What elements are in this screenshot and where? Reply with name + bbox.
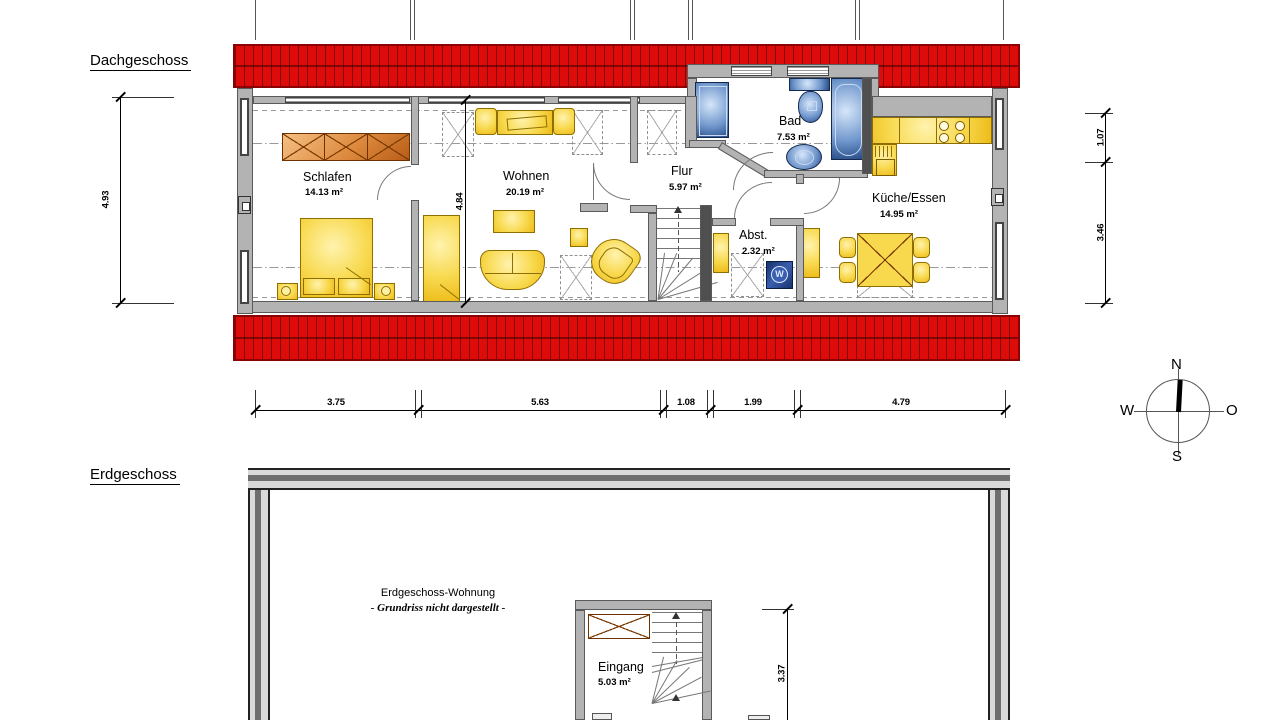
roof-window-marker (442, 112, 474, 157)
room-label-eingang: Eingang (598, 660, 644, 674)
gable-window-post (991, 188, 1004, 206)
partition-wall (411, 200, 419, 301)
stove-burner (955, 121, 965, 131)
bad-wall-bottom (764, 170, 868, 178)
room-label-bad: Bad (779, 114, 801, 128)
gable-window (995, 98, 1004, 150)
dim-chain-line (255, 410, 1005, 411)
room-label-abst: Abst. (739, 228, 768, 242)
washing-machine: W (766, 261, 793, 289)
knee-wall-bottom (237, 301, 1008, 313)
eg-stairs-up-arrow (672, 694, 680, 701)
roof-window-marker (731, 253, 764, 297)
coffee-table (493, 210, 535, 233)
compass-east-label: O (1226, 402, 1238, 419)
sink-basin (876, 159, 895, 176)
armchair (583, 230, 644, 291)
dim-extension-line (692, 0, 693, 40)
stairs-walk-line (678, 214, 679, 272)
dim-extension-line (688, 0, 689, 40)
dim-value-bottom: 3.75 (319, 397, 353, 408)
room-label-flur: Flur (671, 164, 693, 178)
sofa (480, 250, 545, 290)
roof-band-top (233, 44, 1020, 88)
room-area-eingang: 5.03 m² (598, 677, 631, 688)
eg-stairs-walk-line (676, 614, 677, 664)
compass-south-label: S (1172, 448, 1182, 465)
dim-value-left: 4.93 (100, 191, 111, 209)
eg-wardrobe (588, 614, 650, 639)
stove-burner (955, 133, 965, 143)
toilet-cistern (789, 78, 830, 91)
counter-divider (936, 118, 937, 143)
roof-window-marker (560, 255, 592, 300)
dim-value-right-top: 1.07 (1095, 129, 1106, 147)
dim-extension-line (855, 0, 856, 40)
dim-extension-line (762, 609, 794, 610)
tv-board-side (553, 108, 575, 135)
door-arc-kueche (804, 178, 840, 214)
bed-pillow (303, 278, 335, 295)
abst-wall-right (796, 218, 804, 301)
stair-wall-right (700, 205, 712, 301)
compass-north-label: N (1171, 356, 1182, 373)
room-area-flur: 5.97 m² (669, 182, 702, 193)
height-guide-line (253, 110, 689, 111)
dim-value-bottom: 1.99 (736, 397, 770, 408)
stairs-up-arrow (674, 206, 682, 213)
dim-extension-line (112, 303, 174, 304)
daybed (423, 215, 460, 302)
dim-extension-line (1005, 390, 1006, 418)
dim-extension-line (1085, 113, 1113, 114)
eg-stairs-treads (652, 612, 702, 662)
eingang-wall-top (575, 600, 712, 610)
erdgeschoss-title: Erdgeschoss (90, 466, 180, 485)
room-area-schlafen: 14.13 m² (305, 187, 343, 198)
room-label-wohnen: Wohnen (503, 169, 549, 183)
washbasin-inner-line (795, 150, 814, 165)
bad-dormer-window (787, 66, 829, 76)
eg-wall-left (248, 490, 270, 720)
kitchen-counter (872, 117, 992, 144)
window-handle (995, 194, 1003, 203)
cutoff-fixture (592, 713, 612, 720)
toilet-detail (807, 101, 817, 111)
eg-stairs-up-arrow (672, 612, 680, 619)
gable-window (240, 250, 249, 304)
eg-wall-right (988, 490, 1010, 720)
dining-chair (913, 262, 930, 283)
sink-drainboard (875, 146, 894, 157)
dim-extension-line (1003, 0, 1004, 40)
room-area-bad: 7.53 m² (777, 132, 810, 143)
counter-divider (969, 118, 970, 143)
wardrobe-section (283, 134, 325, 160)
partition-wall (411, 96, 419, 165)
dim-line-left (120, 97, 121, 304)
eingang-wall-left (575, 610, 585, 720)
roof-window-marker (647, 110, 677, 155)
abst-wall-top (712, 218, 736, 226)
dim-extension-line (630, 0, 631, 40)
dim-value-eg-stair: 3.37 (776, 665, 787, 683)
room-label-schlafen: Schlafen (303, 170, 352, 184)
dim-value-bottom: 5.63 (523, 397, 557, 408)
door-leaf (593, 163, 594, 200)
gable-window-post (238, 196, 251, 214)
washbasin (786, 144, 822, 170)
shower (695, 82, 729, 138)
dining-chair (913, 237, 930, 258)
kitchen-sink-unit (872, 144, 897, 176)
gable-window (240, 98, 249, 156)
sofa-cushion-line (512, 253, 513, 273)
partition-wall (630, 96, 638, 163)
stove-burner (939, 121, 949, 131)
dining-table (857, 233, 913, 287)
bad-dormer-wall (687, 64, 879, 78)
dining-chair (839, 237, 856, 258)
window-handle (242, 202, 250, 211)
cutoff-fixture (748, 715, 770, 720)
abst-wall-top (770, 218, 804, 226)
dim-extension-line (410, 0, 411, 40)
washing-machine-door: W (771, 266, 788, 283)
knee-wall-window (285, 97, 410, 103)
roof-window-marker (572, 110, 603, 155)
room-area-kueche: 14.95 m² (880, 209, 918, 220)
dim-extension-line (1085, 162, 1113, 163)
dining-chair (839, 262, 856, 283)
wardrobe-section (368, 134, 409, 160)
armchair-seat-line (594, 243, 634, 283)
wall-stub (796, 174, 804, 184)
dim-value-right-bottom: 3.46 (1095, 224, 1106, 242)
roof-band-bottom (233, 315, 1020, 361)
storage-cabinet (713, 233, 729, 273)
wardrobe-section (325, 134, 367, 160)
dim-value-bottom: 4.79 (884, 397, 918, 408)
dim-extension-line (859, 0, 860, 40)
dim-extension-line (634, 0, 635, 40)
bathtub (831, 78, 864, 160)
room-area-wohnen: 20.19 m² (506, 187, 544, 198)
eg-note-line2: - Grundriss nicht dargestellt - (328, 602, 548, 614)
stair-wall-nib (630, 205, 657, 213)
bathtub-inner-line (835, 84, 862, 156)
sofa-cushion-line (485, 273, 541, 274)
knee-wall-window (428, 97, 545, 103)
dim-value-inner: 4.84 (454, 193, 465, 211)
bedside-lamp (281, 286, 291, 296)
bad-kueche-wall (862, 78, 872, 174)
stair-wall-left (648, 213, 657, 301)
kitchen-top-wall (872, 96, 992, 117)
door-arc-wohnen (593, 163, 630, 200)
bad-dormer-window (731, 66, 772, 76)
gable-window (995, 222, 1004, 300)
knee-wall-window (558, 97, 640, 103)
toilet-bowl (798, 91, 823, 123)
floorplan-sheet: Dachgeschoss (0, 0, 1280, 720)
room-label-kueche: Küche/Essen (872, 191, 946, 205)
bedside-lamp (381, 286, 391, 296)
eg-wall-top (248, 468, 1010, 490)
wardrobe (282, 133, 410, 161)
dim-extension-line (112, 97, 174, 98)
dim-extension-line (255, 390, 256, 418)
eg-note-line1: Erdgeschoss-Wohnung (328, 587, 548, 599)
tv-board-side (475, 108, 497, 135)
dachgeschoss-title: Dachgeschoss (90, 52, 191, 71)
stool (570, 228, 588, 247)
dim-extension-line (414, 0, 415, 40)
counter-divider (899, 118, 900, 143)
dim-extension-line (255, 0, 256, 40)
wall-stub (580, 203, 608, 212)
stove-burner (939, 133, 949, 143)
door-arc-schlafen (377, 166, 411, 200)
room-area-abst: 2.32 m² (742, 246, 775, 257)
eingang-wall-right (702, 610, 712, 720)
shower-tray-line (699, 86, 727, 136)
compass-west-label: W (1120, 402, 1134, 419)
dim-value-bottom: 1.08 (669, 397, 703, 408)
dim-extension-line (1085, 303, 1113, 304)
